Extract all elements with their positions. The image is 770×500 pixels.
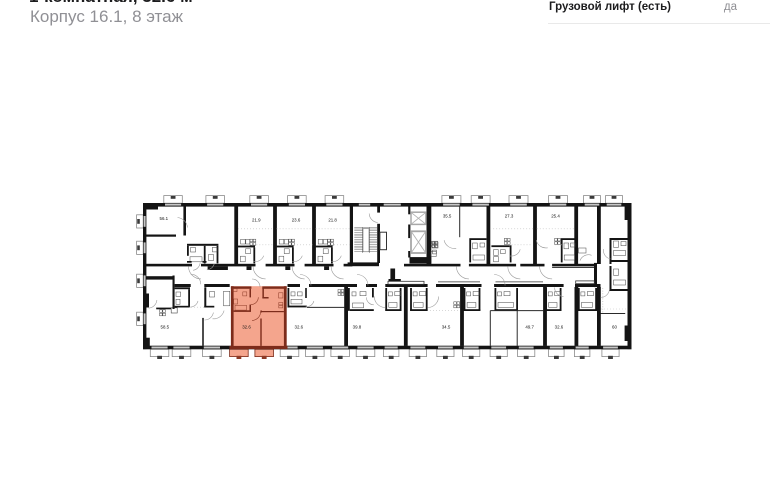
svg-text:39.8: 39.8 bbox=[353, 325, 362, 330]
svg-text:25.4: 25.4 bbox=[551, 213, 560, 218]
svg-text:49.7: 49.7 bbox=[525, 325, 534, 330]
svg-text:60: 60 bbox=[612, 325, 617, 330]
svg-text:21.8: 21.8 bbox=[328, 217, 337, 222]
svg-text:27.3: 27.3 bbox=[505, 213, 514, 218]
svg-text:58.5: 58.5 bbox=[161, 325, 170, 330]
svg-text:23.6: 23.6 bbox=[292, 217, 301, 222]
svg-text:34.5: 34.5 bbox=[442, 325, 451, 330]
svg-text:32.6: 32.6 bbox=[555, 325, 564, 330]
svg-text:32.6: 32.6 bbox=[295, 325, 304, 330]
svg-text:32.6: 32.6 bbox=[242, 325, 251, 330]
svg-text:21.9: 21.9 bbox=[252, 217, 261, 222]
svg-text:35.5: 35.5 bbox=[443, 213, 452, 218]
svg-text:56.1: 56.1 bbox=[160, 216, 169, 221]
